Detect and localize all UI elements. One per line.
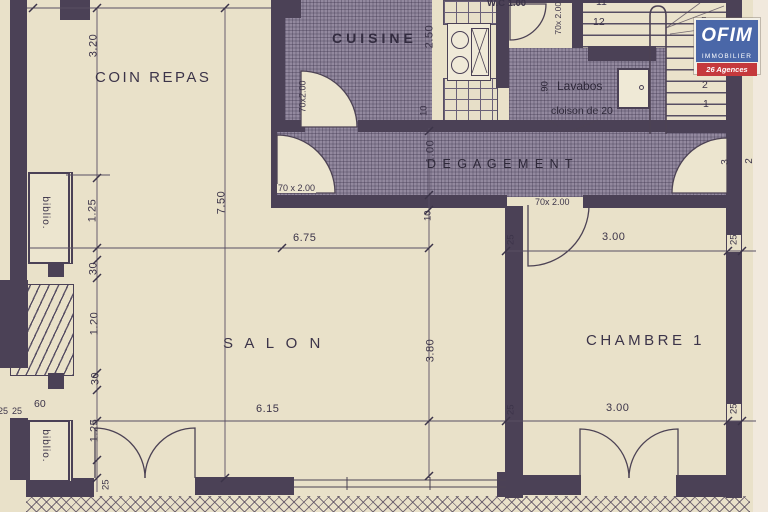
french-door-chambre-left: [580, 429, 629, 478]
cloison-leader: [549, 120, 598, 131]
label-biblio-bottom: biblio.: [40, 406, 50, 486]
ofim-logo-name: OFIM: [696, 20, 758, 52]
room-label-salon: S A L O N: [223, 336, 324, 351]
dim-margin-right-3: 3: [721, 122, 731, 202]
dim-chambre-top-width: 3.00: [602, 232, 625, 243]
room-label-wc: W.C 1.00: [487, 0, 526, 9]
dim-margin-left-b: 25: [12, 407, 22, 416]
stair-number-2: 2: [702, 80, 708, 91]
dim-chambre-wall-tl: 25: [506, 200, 516, 280]
dim-wall-bottom-left: 25: [101, 445, 111, 512]
dim-cuisine-depth: 2.50: [425, 0, 436, 77]
dim-shelf-width: 60: [34, 399, 46, 410]
label-biblio-top: biblio.: [40, 173, 50, 253]
room-label-chambre1: CHAMBRE 1: [586, 333, 705, 348]
dim-margin-right-2: 2: [745, 121, 755, 201]
dim-margin-left-a: 25: [0, 407, 8, 416]
dim-chambre-wall-tr: 25: [729, 200, 739, 280]
dim-salon-height: 3.80: [426, 311, 437, 391]
window-salon: [293, 477, 506, 490]
dim-lavabos-door: .90: [540, 48, 550, 128]
french-door-salon-right: [145, 428, 195, 478]
door-spec-cuisine: 70x2.00: [299, 57, 308, 137]
floor-plan: COIN REPAS CUISINE W.C 1.00 Lavabos cloi…: [0, 0, 768, 512]
door-arc-wc: [510, 4, 546, 40]
stair-number-11: 11: [596, 0, 607, 8]
dim-chambre-wall-bl: 25: [506, 370, 516, 450]
note-cloison: cloison de 20: [551, 106, 613, 117]
dim-chain-125b: 1.25: [90, 391, 101, 471]
sink-drain-x: [472, 29, 487, 73]
stair-number-1: 1: [703, 99, 709, 110]
room-label-degagement: D E G A G E M E N T: [427, 158, 574, 171]
ofim-logo: OFIM IMMOBILIER 26 Agences: [694, 18, 760, 74]
room-label-coin-repas: COIN REPAS: [95, 70, 211, 85]
room-label-lavabos: Lavabos: [557, 80, 602, 92]
dim-total-height: 7.50: [217, 163, 228, 243]
dim-salon-bottom-width: 6.15: [256, 404, 279, 415]
room-label-cuisine: CUISINE: [332, 31, 417, 45]
door-arc-cuisine: [301, 71, 357, 127]
ofim-logo-agences: 26 Agences: [697, 63, 757, 76]
dim-coin-height: 3.20: [89, 6, 100, 86]
door-spec-chambre: 70x 2.00: [534, 198, 571, 207]
dim-chambre-wall-br: 25: [729, 369, 739, 449]
dim-degagement-wall: 10: [423, 176, 433, 256]
dim-chambre-bottom-width: 3.00: [606, 403, 629, 414]
french-door-chambre-right: [629, 429, 678, 478]
door-spec-coin-repas: 70 x 2.00: [277, 184, 316, 193]
ofim-logo-immobilier: IMMOBILIER: [696, 52, 758, 62]
stair-number-12: 12: [593, 17, 605, 28]
door-spec-wc: 70x 2.00: [554, 0, 563, 58]
dim-salon-top-width: 6.75: [293, 233, 316, 244]
door-arc-chambre: [528, 205, 589, 266]
door-arc-stairs: [672, 138, 727, 193]
stair-rail: [650, 6, 666, 134]
